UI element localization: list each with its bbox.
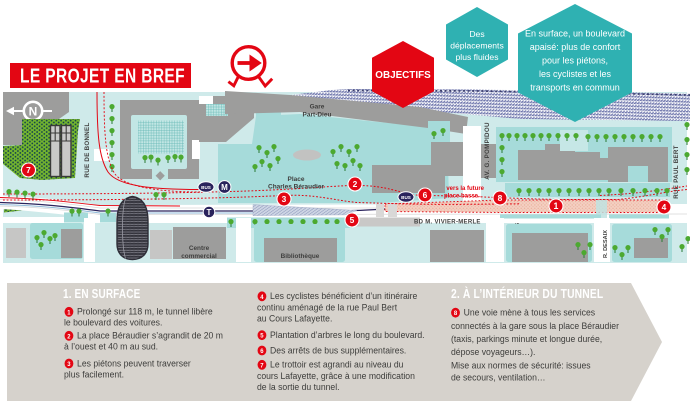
svg-text:Les piétons peuvent traverser: Les piétons peuvent traverser	[77, 358, 191, 369]
svg-text:plus facilement.: plus facilement.	[64, 369, 124, 380]
svg-text:2: 2	[353, 179, 358, 189]
svg-text:déplacements: déplacements	[450, 41, 504, 51]
svg-text:5: 5	[260, 332, 264, 339]
svg-text:6: 6	[423, 190, 428, 200]
svg-text:LE PROJET EN BREF: LE PROJET EN BREF	[20, 64, 185, 87]
svg-text:Gare: Gare	[310, 104, 325, 111]
svg-text:4: 4	[662, 202, 667, 212]
svg-text:8: 8	[498, 193, 503, 203]
svg-text:AV. G. POMPIDOU: AV. G. POMPIDOU	[484, 122, 491, 180]
svg-text:connectés à la gare sous la pl: connectés à la gare sous la place Béraud…	[451, 320, 619, 331]
svg-text:La place Béraudier s’agrandit: La place Béraudier s’agrandit de 20 m	[77, 330, 223, 341]
svg-text:place basse←: place basse←	[444, 194, 484, 200]
svg-text:Place: Place	[288, 176, 305, 183]
svg-text:OBJECTIFS: OBJECTIFS	[375, 70, 431, 81]
svg-text:Charles Béraudier: Charles Béraudier	[268, 184, 324, 191]
svg-text:BD M. VIVIER-MERLE: BD M. VIVIER-MERLE	[414, 220, 481, 226]
svg-text:Des arrêts de bus supplémentai: Des arrêts de bus supplémentaires.	[270, 345, 406, 356]
svg-text:Prolongé sur 118 m, le tunnel: Prolongé sur 118 m, le tunnel libère	[77, 306, 213, 317]
svg-text:Mise aux normes de sécurité: i: Mise aux normes de sécurité: issues	[451, 360, 591, 371]
svg-text:2: 2	[67, 333, 71, 340]
svg-text:N: N	[29, 105, 38, 119]
svg-text:Bibliothèque: Bibliothèque	[281, 253, 320, 260]
svg-text:1. EN SURFACE: 1. EN SURFACE	[63, 288, 141, 301]
svg-text:Une voie mène à tous les servi: Une voie mène à tous les services	[464, 307, 596, 318]
svg-text:Centre: Centre	[189, 245, 210, 252]
svg-text:1: 1	[554, 201, 559, 211]
svg-text:8: 8	[454, 310, 458, 317]
svg-text:BUS: BUS	[201, 185, 211, 190]
svg-text:plus fluides: plus fluides	[456, 52, 499, 62]
svg-text:commercial: commercial	[181, 253, 217, 260]
svg-text:Plantation d’arbres le long du: Plantation d’arbres le long du boulevard…	[270, 330, 425, 341]
svg-text:3: 3	[282, 194, 287, 204]
svg-text:apaisé: plus de confort: apaisé: plus de confort	[530, 42, 621, 52]
svg-text:4: 4	[260, 294, 264, 301]
svg-text:R. DESAIX: R. DESAIX	[603, 230, 609, 258]
svg-text:Le trottoir est agrandi au niv: Le trottoir est agrandi au niveau du	[270, 359, 403, 370]
svg-text:Les cyclistes bénéficient d’un: Les cyclistes bénéficient d’un itinérair…	[270, 291, 417, 302]
svg-text:à l’ouest et 40 m au sud.: à l’ouest et 40 m au sud.	[64, 341, 158, 352]
svg-text:Des: Des	[469, 29, 484, 39]
svg-text:6: 6	[260, 348, 264, 355]
svg-text:pour les piétons,: pour les piétons,	[542, 56, 608, 66]
svg-text:7: 7	[260, 362, 264, 369]
svg-text:les cyclistes et les: les cyclistes et les	[539, 69, 612, 79]
svg-text:au Cours Lafayette.: au Cours Lafayette.	[257, 313, 332, 324]
svg-text:5: 5	[350, 215, 355, 225]
svg-text:RUE DE BONNEL: RUE DE BONNEL	[84, 122, 91, 177]
svg-text:continu aménagé de la rue Paul: continu aménagé de la rue Paul Bert	[257, 302, 398, 313]
svg-text:En surface, un boulevard: En surface, un boulevard	[525, 29, 625, 39]
svg-text:de la sortie du tunnel.: de la sortie du tunnel.	[257, 382, 340, 393]
svg-text:(taxis, parkings minute et lon: (taxis, parkings minute et longue durée,	[451, 334, 602, 345]
svg-text:le boulevard des voitures.: le boulevard des voitures.	[64, 317, 162, 328]
svg-text:3: 3	[67, 361, 71, 368]
svg-text:T: T	[207, 208, 212, 217]
svg-text:vers la future: vers la future	[446, 186, 484, 192]
svg-text:BUS: BUS	[401, 195, 411, 200]
svg-text:transports en commun: transports en commun	[530, 83, 620, 93]
svg-text:dépose voyageurs…).: dépose voyageurs…).	[451, 347, 535, 358]
svg-text:Part-Dieu: Part-Dieu	[303, 112, 332, 119]
svg-text:2. À L’INTÉRIEUR DU TUNNEL: 2. À L’INTÉRIEUR DU TUNNEL	[451, 287, 603, 301]
svg-text:de secours, ventilation…: de secours, ventilation…	[451, 372, 546, 383]
svg-text:1: 1	[67, 309, 71, 316]
svg-text:7: 7	[26, 165, 31, 175]
svg-text:cours Lafayette, grâce à une m: cours Lafayette, grâce à une modificatio…	[257, 370, 415, 381]
svg-text:M: M	[221, 183, 228, 192]
